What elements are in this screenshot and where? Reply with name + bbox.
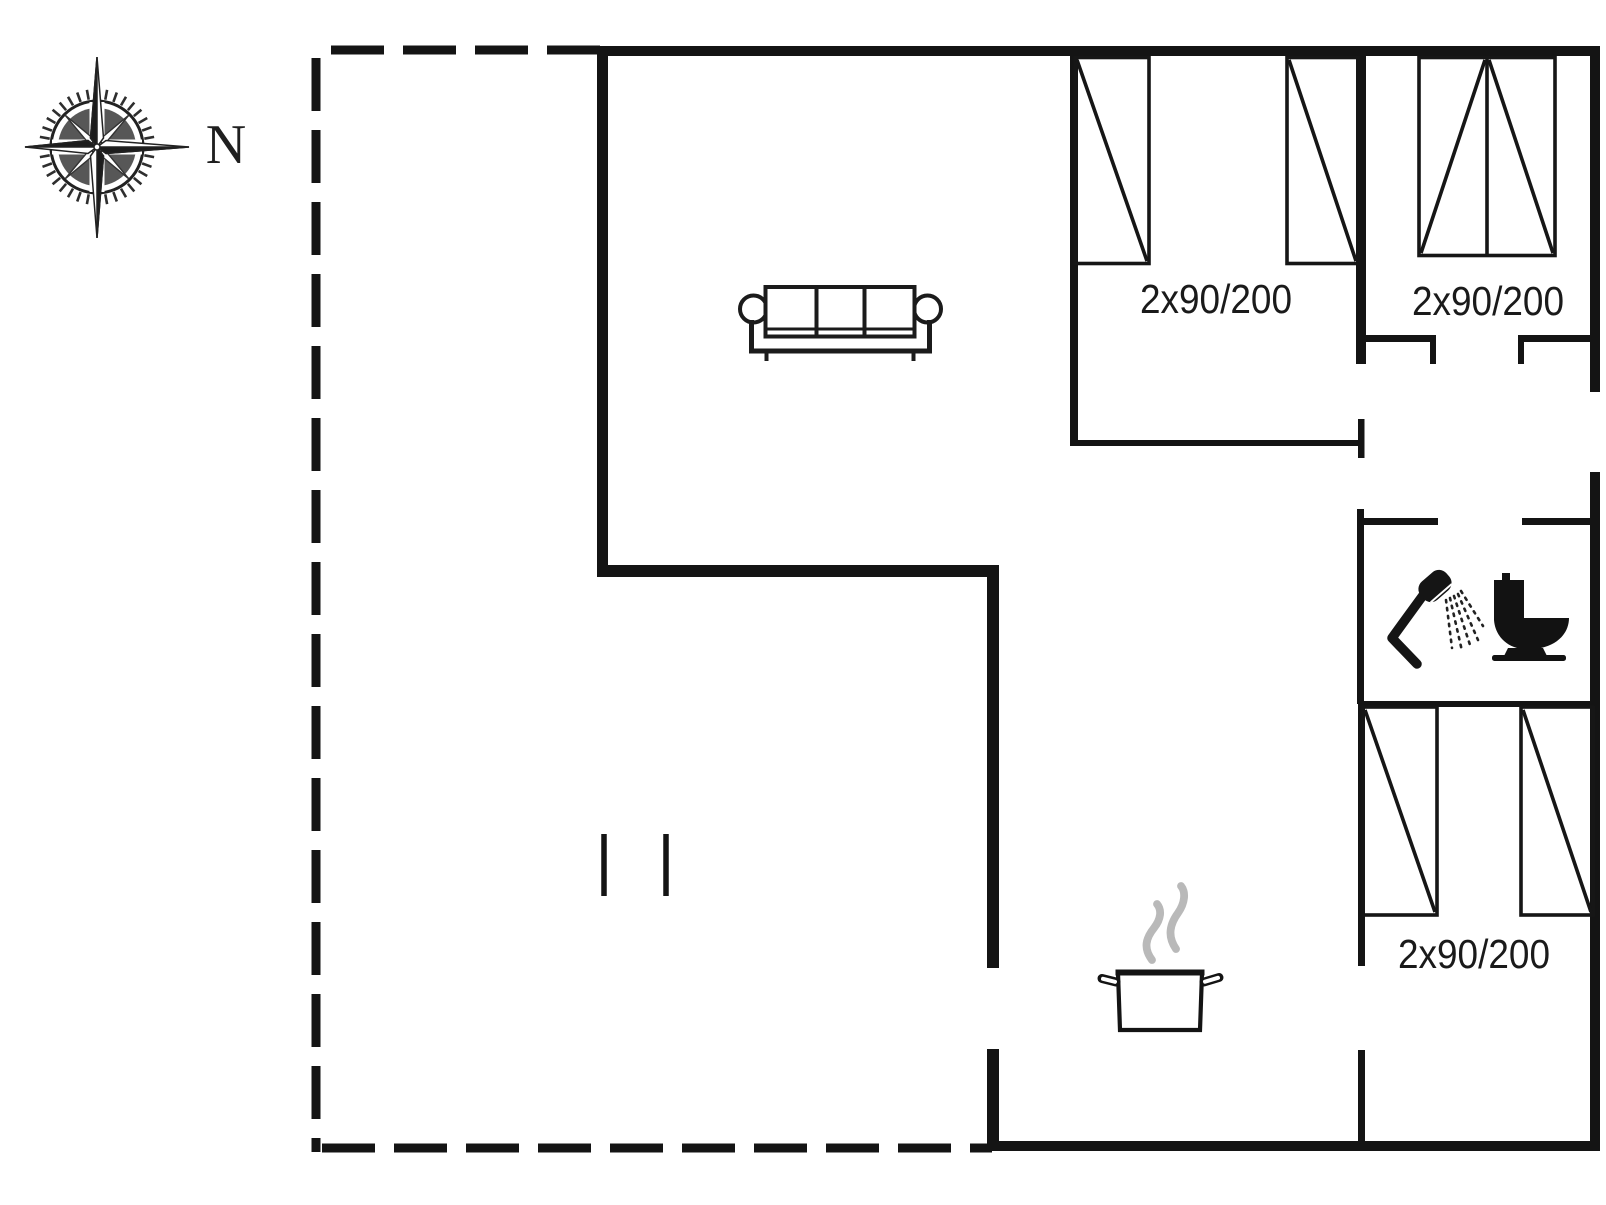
svg-text:2x90/200: 2x90/200 — [1140, 276, 1292, 322]
svg-text:N: N — [206, 114, 246, 176]
svg-text:2x90/200: 2x90/200 — [1398, 931, 1550, 977]
svg-text:2x90/200: 2x90/200 — [1412, 278, 1564, 324]
